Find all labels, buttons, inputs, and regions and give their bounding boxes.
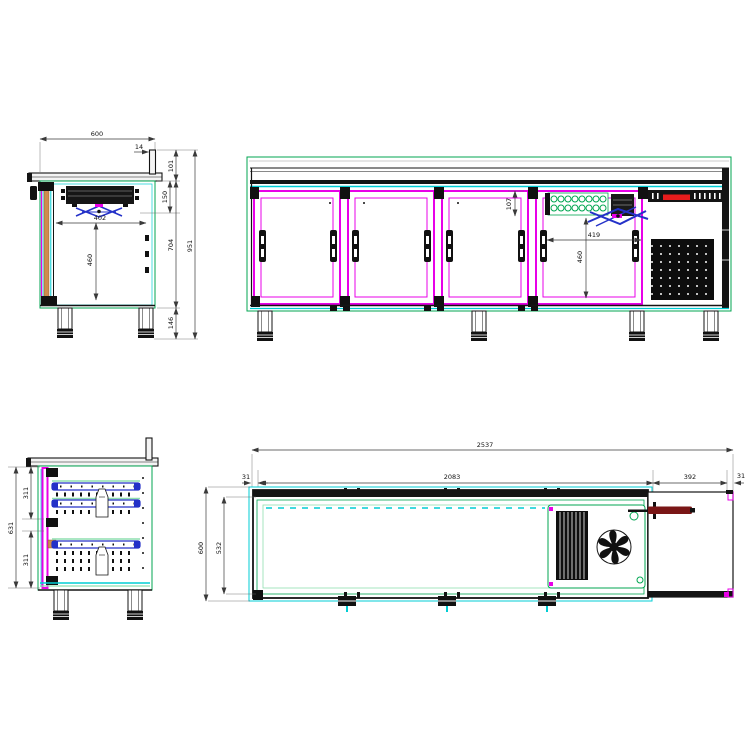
dim-interior-width: 2083 [444,473,461,481]
plan-view: 2537 31 2083 392 31 [197,441,745,612]
dim-interior-height: 460 [86,254,94,266]
dim-evap-drop: 150 [161,191,169,203]
dim-depth-top: 600 [91,130,103,138]
dim-door-opening-height: 460 [576,251,584,263]
dim-interior-depth: 402 [94,214,106,222]
dim-top-offset: 107 [505,198,513,210]
dim-upper-drawer: 311 [22,487,30,499]
door-1 [254,191,340,304]
dim-bay-width: 419 [588,231,600,239]
upstand [146,438,152,460]
door-hinge-bottom [41,296,57,305]
condenser-grille [651,239,714,300]
front-view: 107 419 460 [247,157,731,341]
condenser-fan-icon [597,529,631,565]
dim-wall-left: 31 [242,473,250,481]
dim-lower-drawer: 311 [22,554,30,566]
dim-overall-height: 951 [186,240,194,252]
evaporator-coil [545,193,608,215]
technical-drawing-canvas: 600 14 [0,0,750,750]
drawing-sheet: 600 14 [0,0,750,750]
latch-top [46,468,58,477]
back-panel [253,490,648,497]
brand-logo [663,195,690,201]
dim-machine-bay-width: 392 [684,473,696,481]
latch-mid [46,518,58,527]
right-end-panel [722,168,729,308]
dim-plan-interior-depth: 532 [215,542,223,554]
door-2 [348,191,434,304]
dim-leg-height: 146 [167,317,175,329]
dim-interior-overall: 631 [7,522,15,534]
worktop-edge [250,180,729,184]
door-gasket [44,188,49,300]
condensing-unit [548,505,645,588]
condensate-tray [648,490,733,597]
dim-plan-depth: 600 [197,542,205,554]
side-section-view: 600 14 [27,130,198,339]
dim-upstand-lip: 14 [135,143,143,151]
dim-wall-right: 31 [737,472,745,480]
dim-body-height: 704 [167,239,175,251]
door-hinge-top [38,182,54,191]
door-handle [30,186,37,200]
dim-overall-width: 2537 [477,441,494,449]
side-drawer-view: 631 311 311 [7,438,158,620]
evaporator-unit [61,186,139,207]
upstand [150,150,156,174]
dim-top-section: 101 [167,160,175,172]
